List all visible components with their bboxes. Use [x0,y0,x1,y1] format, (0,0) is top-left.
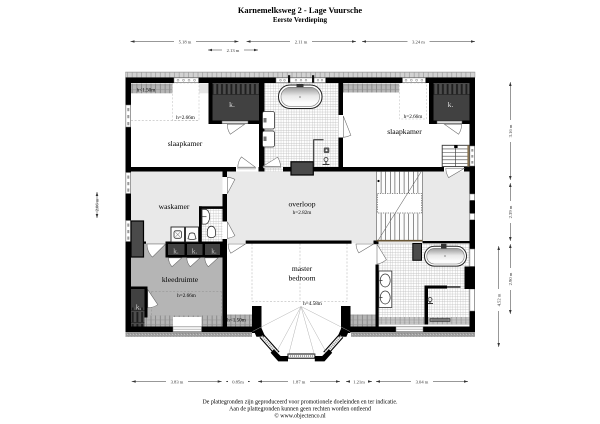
svg-text:Aan de plattegronden kunnen ge: Aan de plattegronden kunnen geen rechten… [229,406,371,412]
svg-text:3.16 m: 3.16 m [508,124,513,137]
svg-text:h<1.50m: h<1.50m [227,317,246,323]
svg-text:h<1.50m: h<1.50m [137,88,156,94]
svg-text:bedroom: bedroom [289,274,316,283]
svg-text:1.87 m: 1.87 m [293,379,306,384]
svg-text:h=2.66m: h=2.66m [177,293,196,299]
svg-text:k.: k. [229,100,235,109]
svg-text:k.: k. [136,304,142,312]
svg-text:2.39 m: 2.39 m [508,205,513,218]
svg-text:4.52 m: 4.52 m [496,293,501,306]
svg-text:3.83 m: 3.83 m [171,379,184,384]
svg-text:5.18 m: 5.18 m [179,39,192,44]
svg-text:2.06 m: 2.06 m [95,198,100,211]
svg-text:master: master [292,264,313,273]
svg-text:2.90 m: 2.90 m [508,272,513,285]
svg-text:kleedruimte: kleedruimte [162,275,199,284]
svg-text:h=4.58m: h=4.58m [303,301,322,307]
svg-text:Karnemelksweg 2 - Lage Vuursch: Karnemelksweg 2 - Lage Vuursche [238,6,363,15]
svg-text:© www.objectenco.nl: © www.objectenco.nl [274,412,326,419]
svg-text:2.11 m: 2.11 m [295,39,308,44]
svg-text:2.13 m: 2.13 m [227,48,240,53]
svg-text:waskamer: waskamer [159,202,190,211]
svg-text:k.: k. [192,247,198,256]
svg-text:slaapkamer: slaapkamer [168,139,203,148]
svg-text:3.24 m: 3.24 m [412,39,425,44]
svg-text:overloop: overloop [289,200,316,209]
svg-text:k.: k. [211,247,217,256]
svg-text:slaapkamer: slaapkamer [387,127,422,136]
svg-text:Eerste Verdieping: Eerste Verdieping [273,16,328,24]
svg-text:3.04 m: 3.04 m [416,379,429,384]
svg-text:0.85m: 0.85m [232,379,244,384]
svg-text:h=2.82m: h=2.82m [293,210,312,216]
svg-text:De plattegronden zijn geproduc: De plattegronden zijn geproduceerd voor … [203,399,398,405]
svg-text:k.: k. [173,247,179,256]
svg-text:h=2.66m: h=2.66m [404,114,423,120]
svg-text:k.: k. [448,100,454,109]
svg-text:1.21m: 1.21m [353,379,365,384]
svg-text:h=2.66m: h=2.66m [176,115,195,121]
